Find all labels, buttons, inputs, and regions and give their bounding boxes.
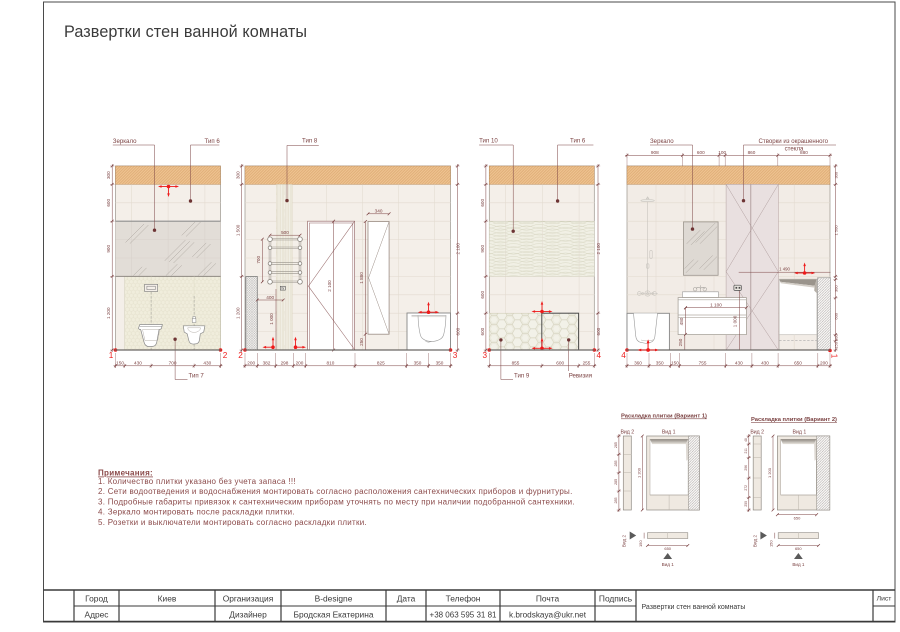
svg-text:250: 250 — [359, 338, 364, 346]
svg-text:700: 700 — [169, 361, 177, 366]
svg-text:860: 860 — [748, 150, 756, 155]
svg-text:1 200: 1 200 — [106, 307, 111, 319]
svg-text:48: 48 — [744, 438, 748, 442]
svg-text:600: 600 — [596, 327, 601, 335]
svg-text:900: 900 — [106, 245, 111, 253]
svg-text:200: 200 — [820, 361, 828, 366]
svg-text:Вид 1: Вид 1 — [662, 562, 675, 567]
svg-text:255: 255 — [583, 361, 591, 366]
svg-text:1. Количество плитки указано б: 1. Количество плитки указано без учета з… — [98, 477, 296, 486]
svg-text:200: 200 — [247, 361, 255, 366]
svg-text:Организация: Организация — [223, 594, 274, 604]
svg-text:285: 285 — [614, 442, 618, 448]
svg-text:600: 600 — [106, 199, 111, 207]
svg-text:430: 430 — [203, 361, 211, 366]
svg-text:350: 350 — [414, 361, 422, 366]
svg-text:Тип 10: Тип 10 — [479, 138, 498, 145]
svg-text:1 200: 1 200 — [236, 307, 241, 319]
svg-text:350: 350 — [436, 361, 444, 366]
svg-text:600: 600 — [480, 327, 485, 335]
svg-text:Тип 9: Тип 9 — [514, 373, 530, 380]
svg-text:296: 296 — [744, 465, 748, 471]
svg-text:382: 382 — [263, 361, 271, 366]
svg-text:350: 350 — [656, 361, 664, 366]
svg-text:1 000: 1 000 — [269, 313, 274, 325]
svg-text:650: 650 — [794, 515, 801, 520]
svg-text:Раскладка плитки (Вариант 2): Раскладка плитки (Вариант 2) — [751, 417, 837, 423]
svg-text:Подпись: Подпись — [599, 594, 633, 604]
svg-text:3. Подробные габариты привязок: 3. Подробные габариты привязок к сантехн… — [98, 497, 575, 506]
svg-text:285: 285 — [614, 461, 618, 467]
svg-text:2: 2 — [223, 351, 228, 360]
svg-text:Почта: Почта — [536, 594, 560, 604]
svg-text:Лист: Лист — [877, 596, 892, 603]
svg-text:3: 3 — [483, 351, 488, 360]
svg-text:1 200: 1 200 — [636, 467, 641, 478]
svg-text:600: 600 — [456, 327, 461, 335]
svg-text:Киев: Киев — [158, 594, 177, 604]
svg-text:300: 300 — [106, 171, 111, 179]
svg-text:100: 100 — [718, 150, 726, 155]
svg-text:908: 908 — [651, 150, 659, 155]
svg-text:880: 880 — [800, 150, 808, 155]
svg-text:1 100: 1 100 — [710, 303, 722, 308]
svg-text:2: 2 — [238, 351, 243, 360]
svg-text:B-designe: B-designe — [315, 594, 353, 604]
svg-text:Дата: Дата — [397, 594, 416, 604]
svg-text:150: 150 — [638, 540, 643, 547]
svg-text:2 100: 2 100 — [456, 243, 461, 255]
svg-text:400: 400 — [266, 295, 274, 300]
svg-text:1 880: 1 880 — [359, 272, 364, 284]
svg-text:k.brodskaya@ukr.net: k.brodskaya@ukr.net — [509, 610, 587, 619]
svg-text:150: 150 — [116, 361, 124, 366]
svg-text:Город: Город — [85, 594, 108, 604]
svg-text:2. Сети водоотведения и водосн: 2. Сети водоотведения и водоснабжения мо… — [98, 487, 573, 496]
svg-text:200: 200 — [296, 361, 304, 366]
svg-text:Бродская Екатерина: Бродская Екатерина — [294, 609, 374, 619]
svg-text:600: 600 — [556, 361, 564, 366]
svg-text:4: 4 — [597, 351, 602, 360]
svg-text:Вид 1: Вид 1 — [793, 430, 807, 436]
svg-text:Дизайнер: Дизайнер — [229, 609, 267, 619]
svg-text:1: 1 — [829, 354, 838, 359]
svg-text:Тип 7: Тип 7 — [189, 373, 205, 380]
svg-text:211: 211 — [744, 448, 748, 453]
svg-text:Вид 2: Вид 2 — [620, 430, 634, 436]
svg-text:825: 825 — [377, 361, 385, 366]
svg-text:Створки из окрашенного: Створки из окрашенного — [759, 138, 829, 145]
svg-text:Зеркало: Зеркало — [650, 138, 674, 145]
svg-text:430: 430 — [134, 361, 142, 366]
svg-text:Тип 8: Тип 8 — [302, 138, 318, 145]
svg-text:Тип 6: Тип 6 — [205, 138, 221, 145]
svg-text:600: 600 — [834, 312, 839, 319]
svg-text:4. Зеркало монтировать после р: 4. Зеркало монтировать после раскладки п… — [98, 508, 295, 517]
svg-text:3: 3 — [453, 351, 458, 360]
svg-text:Вид 1: Вид 1 — [792, 562, 805, 567]
svg-text:2 100: 2 100 — [327, 280, 332, 292]
svg-text:Раскладка плитки (Вариант 1): Раскладка плитки (Вариант 1) — [621, 414, 707, 420]
svg-text:600: 600 — [697, 150, 705, 155]
svg-text:430: 430 — [761, 361, 769, 366]
svg-text:500: 500 — [281, 230, 289, 235]
svg-text:+38 063 595 31 81: +38 063 595 31 81 — [430, 610, 498, 619]
svg-text:650: 650 — [794, 361, 802, 366]
svg-text:360: 360 — [634, 361, 642, 366]
svg-text:W: W — [281, 287, 284, 291]
svg-text:300: 300 — [834, 285, 839, 292]
svg-text:Ревизия: Ревизия — [569, 373, 592, 380]
svg-text:1 490: 1 490 — [779, 267, 790, 272]
svg-text:900: 900 — [480, 245, 485, 253]
svg-text:298: 298 — [281, 361, 289, 366]
svg-text:Адрес: Адрес — [85, 609, 109, 619]
svg-text:150: 150 — [834, 341, 839, 348]
svg-text:Вид 2: Вид 2 — [752, 534, 757, 547]
svg-text:600: 600 — [480, 291, 485, 299]
svg-text:Вид 1: Вид 1 — [662, 430, 676, 436]
svg-text:480: 480 — [679, 317, 684, 325]
svg-text:1 000: 1 000 — [733, 315, 738, 327]
svg-text:1 500: 1 500 — [236, 224, 241, 236]
svg-text:250: 250 — [744, 501, 748, 507]
svg-text:810: 810 — [326, 361, 334, 366]
svg-text:Вид 2: Вид 2 — [750, 430, 764, 436]
svg-text:650: 650 — [664, 546, 671, 551]
svg-text:4: 4 — [621, 351, 626, 360]
svg-text:5. Розетки и выключатели монти: 5. Розетки и выключатели монтировать сог… — [98, 518, 367, 527]
svg-text:600: 600 — [480, 199, 485, 207]
svg-text:430: 430 — [735, 361, 743, 366]
svg-text:650: 650 — [795, 546, 802, 551]
svg-text:300: 300 — [834, 171, 839, 178]
svg-text:Тип 6: Тип 6 — [570, 138, 586, 145]
svg-text:272: 272 — [744, 485, 748, 491]
svg-text:Развертки стен ванной комнаты: Развертки стен ванной комнаты — [642, 603, 746, 611]
svg-text:2 100: 2 100 — [596, 243, 601, 255]
svg-text:285: 285 — [614, 479, 618, 485]
svg-text:Телефон: Телефон — [446, 594, 481, 604]
svg-text:Вид 2: Вид 2 — [622, 534, 627, 547]
svg-text:150: 150 — [671, 361, 679, 366]
svg-text:150: 150 — [769, 540, 774, 547]
svg-text:Развертки стен ванной комнаты: Развертки стен ванной комнаты — [64, 23, 307, 41]
svg-text:340: 340 — [375, 209, 383, 214]
svg-text:855: 855 — [512, 361, 520, 366]
svg-text:1: 1 — [109, 351, 114, 360]
svg-text:100: 100 — [834, 334, 839, 341]
svg-text:1 500: 1 500 — [834, 225, 839, 236]
svg-text:700: 700 — [256, 256, 261, 264]
svg-text:250: 250 — [678, 338, 683, 346]
svg-text:300: 300 — [236, 171, 241, 179]
svg-text:285: 285 — [614, 498, 618, 504]
svg-text:1 200: 1 200 — [767, 467, 772, 478]
svg-text:755: 755 — [699, 361, 707, 366]
svg-text:Зеркало: Зеркало — [113, 138, 137, 145]
